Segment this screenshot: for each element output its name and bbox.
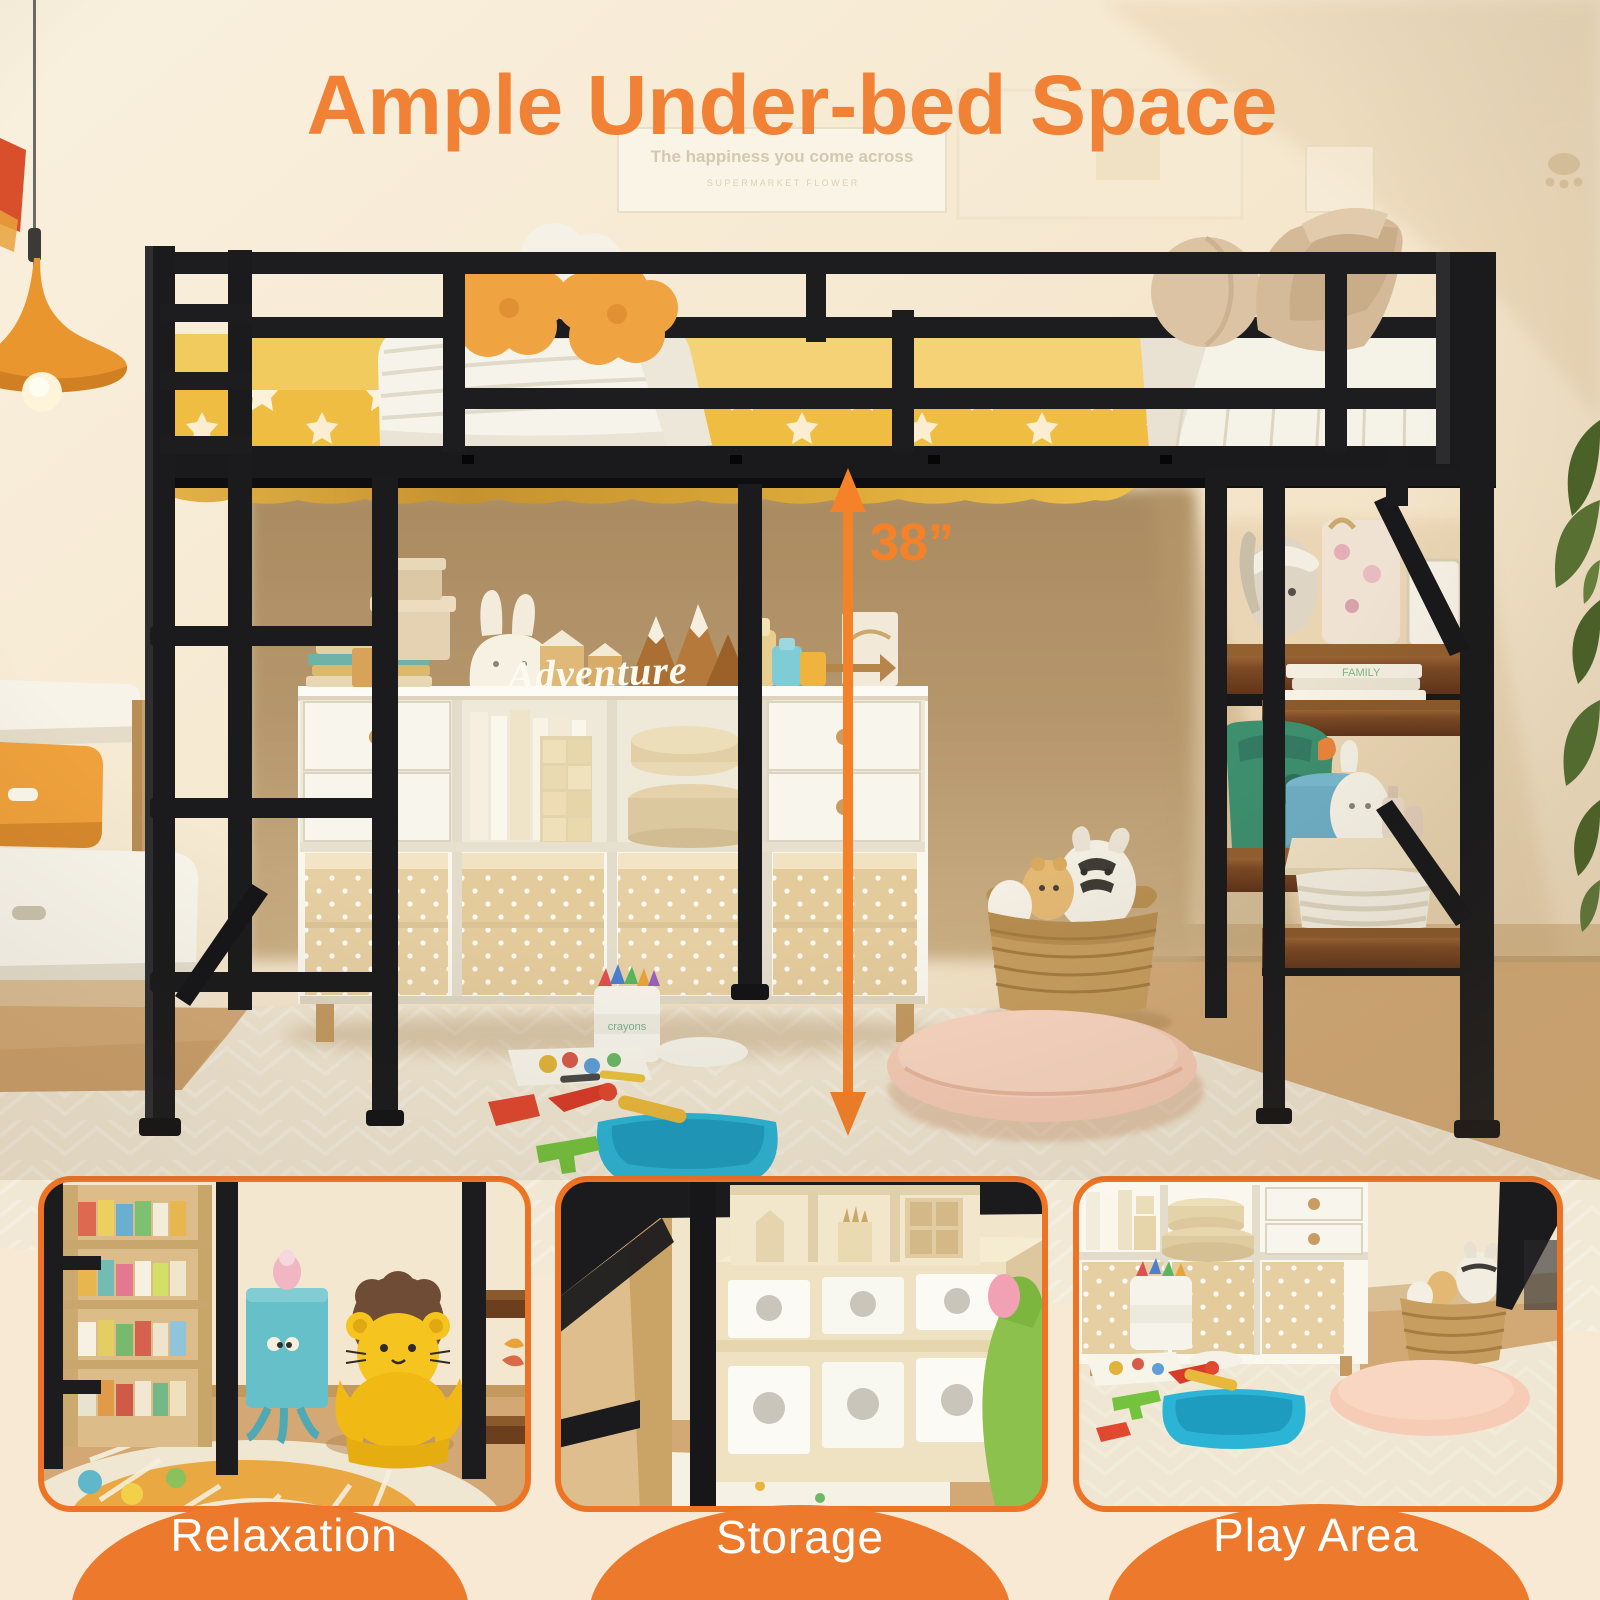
svg-text:Play Area: Play Area: [1213, 1509, 1419, 1561]
svg-text:Ample Under-bed Space: Ample Under-bed Space: [307, 58, 1278, 152]
svg-text:Relaxation: Relaxation: [170, 1509, 397, 1561]
svg-text:Storage: Storage: [716, 1511, 884, 1563]
